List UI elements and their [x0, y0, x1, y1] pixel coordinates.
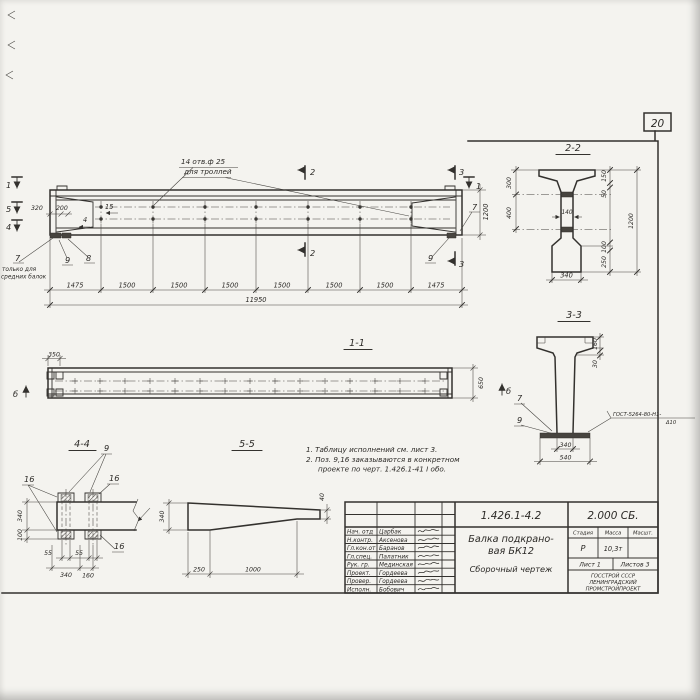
dim-160: 160 [592, 338, 599, 350]
pos-16-a: 16 [24, 474, 34, 484]
pos-9-s44: 9 [104, 443, 109, 453]
hole-note-line2: для троллей [183, 167, 232, 176]
cut-label-5-left: 5 [6, 204, 11, 214]
sole-plate [540, 433, 590, 438]
dim-1200: 1200 [482, 204, 490, 221]
clamp-squares [47, 372, 447, 396]
notes: 1. Таблицу исполнений см. лист 3. 2. Поз… [306, 445, 460, 474]
chain-dim-3: 1500 [222, 282, 239, 290]
doc-code: 2.000 СБ. [587, 510, 638, 522]
scale-header: Масшт. [633, 531, 653, 537]
signer-name-0: Царбак [379, 530, 402, 536]
chain-dim-6: 1500 [377, 282, 394, 290]
sheet-count-label: Лист 1 [578, 562, 601, 569]
mass-header: Масса [605, 531, 622, 537]
chain-dim-7: 1475 [428, 282, 445, 290]
signature-4 [418, 562, 439, 565]
pos-8-left: 8 [86, 253, 91, 263]
dim-40-s55: 40 [319, 493, 326, 501]
pos-4-inner: 4 [83, 216, 87, 224]
dim-340-horiz-s44: 340 [60, 572, 72, 579]
band-outline [57, 502, 136, 530]
pos-7-right: 7 [472, 202, 478, 212]
dim-100-s44: 100 [17, 529, 24, 541]
drawing-sheet: 20 14 отв.ф 25 для троллей 1 5 4 2 2 [0, 0, 700, 700]
signature-6 [418, 579, 439, 581]
break-arrow [138, 508, 150, 521]
dim-1000-s55: 1000 [245, 567, 261, 574]
view-b-label-left: б [13, 389, 18, 399]
drawing-canvas: 20 14 отв.ф 25 для троллей 1 5 4 2 2 [0, 0, 700, 700]
pos-7-s33: 7 [517, 393, 523, 403]
signer-name-1: Аксенова [378, 538, 408, 544]
signature-2 [418, 546, 439, 549]
note-line-3: проекте по черт. 1.426.1-41 I обо. [318, 465, 446, 474]
org-line-1: ГОССТРОЙ СССР [591, 573, 636, 580]
dim-340-s55: 340 [159, 511, 166, 523]
pos-16-c: 16 [114, 541, 124, 551]
sheet-number: 20 [651, 118, 665, 130]
signer-name-6: Гордеева [379, 579, 408, 585]
weld-note-2: Δ10 [665, 420, 677, 426]
s55-right-dim [320, 504, 331, 524]
section-1-1: 1-1 350 650 б [13, 338, 485, 402]
dim-total-11950: 11950 [246, 296, 267, 304]
signer-role-4: Рук. гр. [347, 563, 370, 569]
chain-dim-0: 1475 [67, 282, 84, 290]
dim-55-a: 55 [44, 550, 52, 557]
cut-label-2-top: 2 [310, 167, 315, 177]
weld-note: ГОСТ-5264-80-Н1- [613, 412, 661, 418]
signature-3 [418, 555, 439, 557]
dim-140: 140 [561, 210, 572, 216]
dim-340-s33: 340 [560, 442, 572, 449]
dim-340-s22: 340 [560, 272, 573, 280]
cut-label-3-bottom: 3 [459, 259, 464, 269]
dim-50: 50 [601, 190, 608, 198]
dim-1200-section: 1200 [628, 213, 635, 229]
pos-s44-leaders [22, 454, 124, 552]
wedge-outline [188, 503, 320, 530]
dim-320: 320 [31, 205, 43, 212]
dim-150: 150 [601, 170, 608, 182]
signer-name-3: Палатник [379, 554, 409, 560]
flange-notches [537, 337, 593, 343]
pos-9-s33: 9 [517, 415, 522, 425]
section-2-2-label: 2-2 [565, 143, 581, 154]
drawing-title-line1: Балка подкрано- [468, 534, 554, 545]
only-note-line2: средних балок [1, 275, 47, 281]
main-elevation-view: 14 отв.ф 25 для троллей 1 5 4 2 2 3 3 1 … [1, 157, 490, 308]
section-3-3-outline [537, 337, 593, 433]
dim-350: 350 [48, 352, 60, 359]
section-3-3: 3-3 160 30 7 9 ГОСТ-5264-80-Н1- Δ10 340 … [502, 310, 695, 465]
chain-dim-5: 1500 [326, 282, 343, 290]
cut-label-3-top: 3 [459, 167, 464, 177]
dim-250-s55: 250 [193, 567, 205, 574]
org-line-3: ПРОМСТРОЙПРОЕКТ [586, 586, 642, 593]
signer-name-4: Мединская [379, 563, 413, 569]
section-3-3-label: 3-3 [566, 310, 582, 321]
sheet-frame: 20 [2, 11, 671, 593]
signature-1 [418, 538, 439, 541]
cut-label-2-bottom: 2 [310, 248, 315, 258]
signer-name-7: Бобович [379, 587, 405, 593]
signer-name-2: Баранов [379, 546, 405, 552]
chain-dim-4: 1500 [274, 282, 291, 290]
only-note-line1: только для [2, 267, 37, 273]
pos-16-b: 16 [109, 473, 119, 483]
hole-centerlines [95, 201, 450, 225]
signature-0 [418, 529, 439, 532]
title-block: 1.426.1-4.2 2.000 СБ. Балка подкрано- ва… [345, 502, 658, 593]
signer-role-2: Гл.кон.от [347, 546, 376, 552]
note-line-2: 2. Поз. 9,16 заказываются в конкретном [306, 455, 460, 464]
chain-dim-2: 1500 [171, 282, 188, 290]
cut-label-4-left: 4 [6, 222, 11, 232]
doc-number: 1.426.1-4.2 [481, 510, 542, 522]
pos-left-leaders [13, 238, 95, 265]
dim-160-s44: 160 [82, 573, 94, 580]
hole-note-line1: 14 отв.ф 25 [181, 157, 226, 166]
dim-540-s33: 540 [560, 455, 572, 462]
signer-role-3: Гл.спец. [347, 554, 372, 560]
s55-left-dim [163, 499, 188, 534]
chain-dim-1: 1500 [119, 282, 136, 290]
dim-55-b: 55 [75, 550, 83, 557]
stage-value: Р [581, 543, 586, 553]
drawing-title-line2: вая БК12 [488, 546, 534, 557]
pos-9-right: 9 [428, 253, 433, 263]
org-line-2: ЛЕНИНГРАДСКИЙ [588, 579, 637, 586]
signature-7 [418, 587, 439, 590]
dim-650-lines [452, 364, 478, 402]
dim-400: 400 [506, 207, 513, 219]
dim-200: 200 [56, 205, 68, 212]
dim-250: 250 [601, 256, 608, 268]
dim-300: 300 [506, 177, 513, 189]
section-5-5-label: 5-5 [239, 439, 255, 450]
note-line-1: 1. Таблицу исполнений см. лист 3. [306, 445, 437, 454]
signer-role-1: Н.контр. [347, 538, 373, 544]
pos-15: 15 [105, 203, 113, 211]
cut-label-1-left: 1 [6, 180, 11, 190]
sheets-total-label: Листов 3 [619, 562, 649, 569]
signer-role-5: Проект. [347, 571, 371, 577]
break-line [133, 499, 139, 531]
stage-header: Стадия [573, 531, 593, 537]
fold-marks [6, 11, 15, 79]
section-4-4: 4-4 9 16 16 16 340 100 55 55 340 160 [17, 439, 150, 580]
dim-650: 650 [478, 377, 485, 389]
mass-value: 10,3т [604, 545, 623, 553]
signer-role-6: Провер. [347, 579, 371, 585]
signer-role-7: Исполн. [347, 587, 371, 593]
dim-340-vert-s44: 340 [17, 510, 24, 522]
signature-5 [418, 571, 439, 574]
view-b-label-right: б [506, 386, 511, 396]
cut-marks-thick [12, 166, 474, 265]
pos-9-left: 9 [65, 255, 70, 265]
section-1-1-label: 1-1 [349, 338, 365, 349]
signer-role-0: Нач. отд [347, 530, 373, 536]
section-2-2-ticks [514, 168, 640, 283]
section-2-2-outline [539, 170, 595, 272]
drawing-title-line3: Сборочный чертеж [470, 564, 553, 574]
dim-100: 100 [601, 241, 608, 253]
signer-name-5: Гордеева [379, 571, 408, 577]
section-4-4-label: 4-4 [74, 439, 90, 450]
section-2-2: 2-2 300 400 150 50 1200 100 250 140 340 [506, 143, 641, 283]
dim-30: 30 [592, 360, 599, 368]
